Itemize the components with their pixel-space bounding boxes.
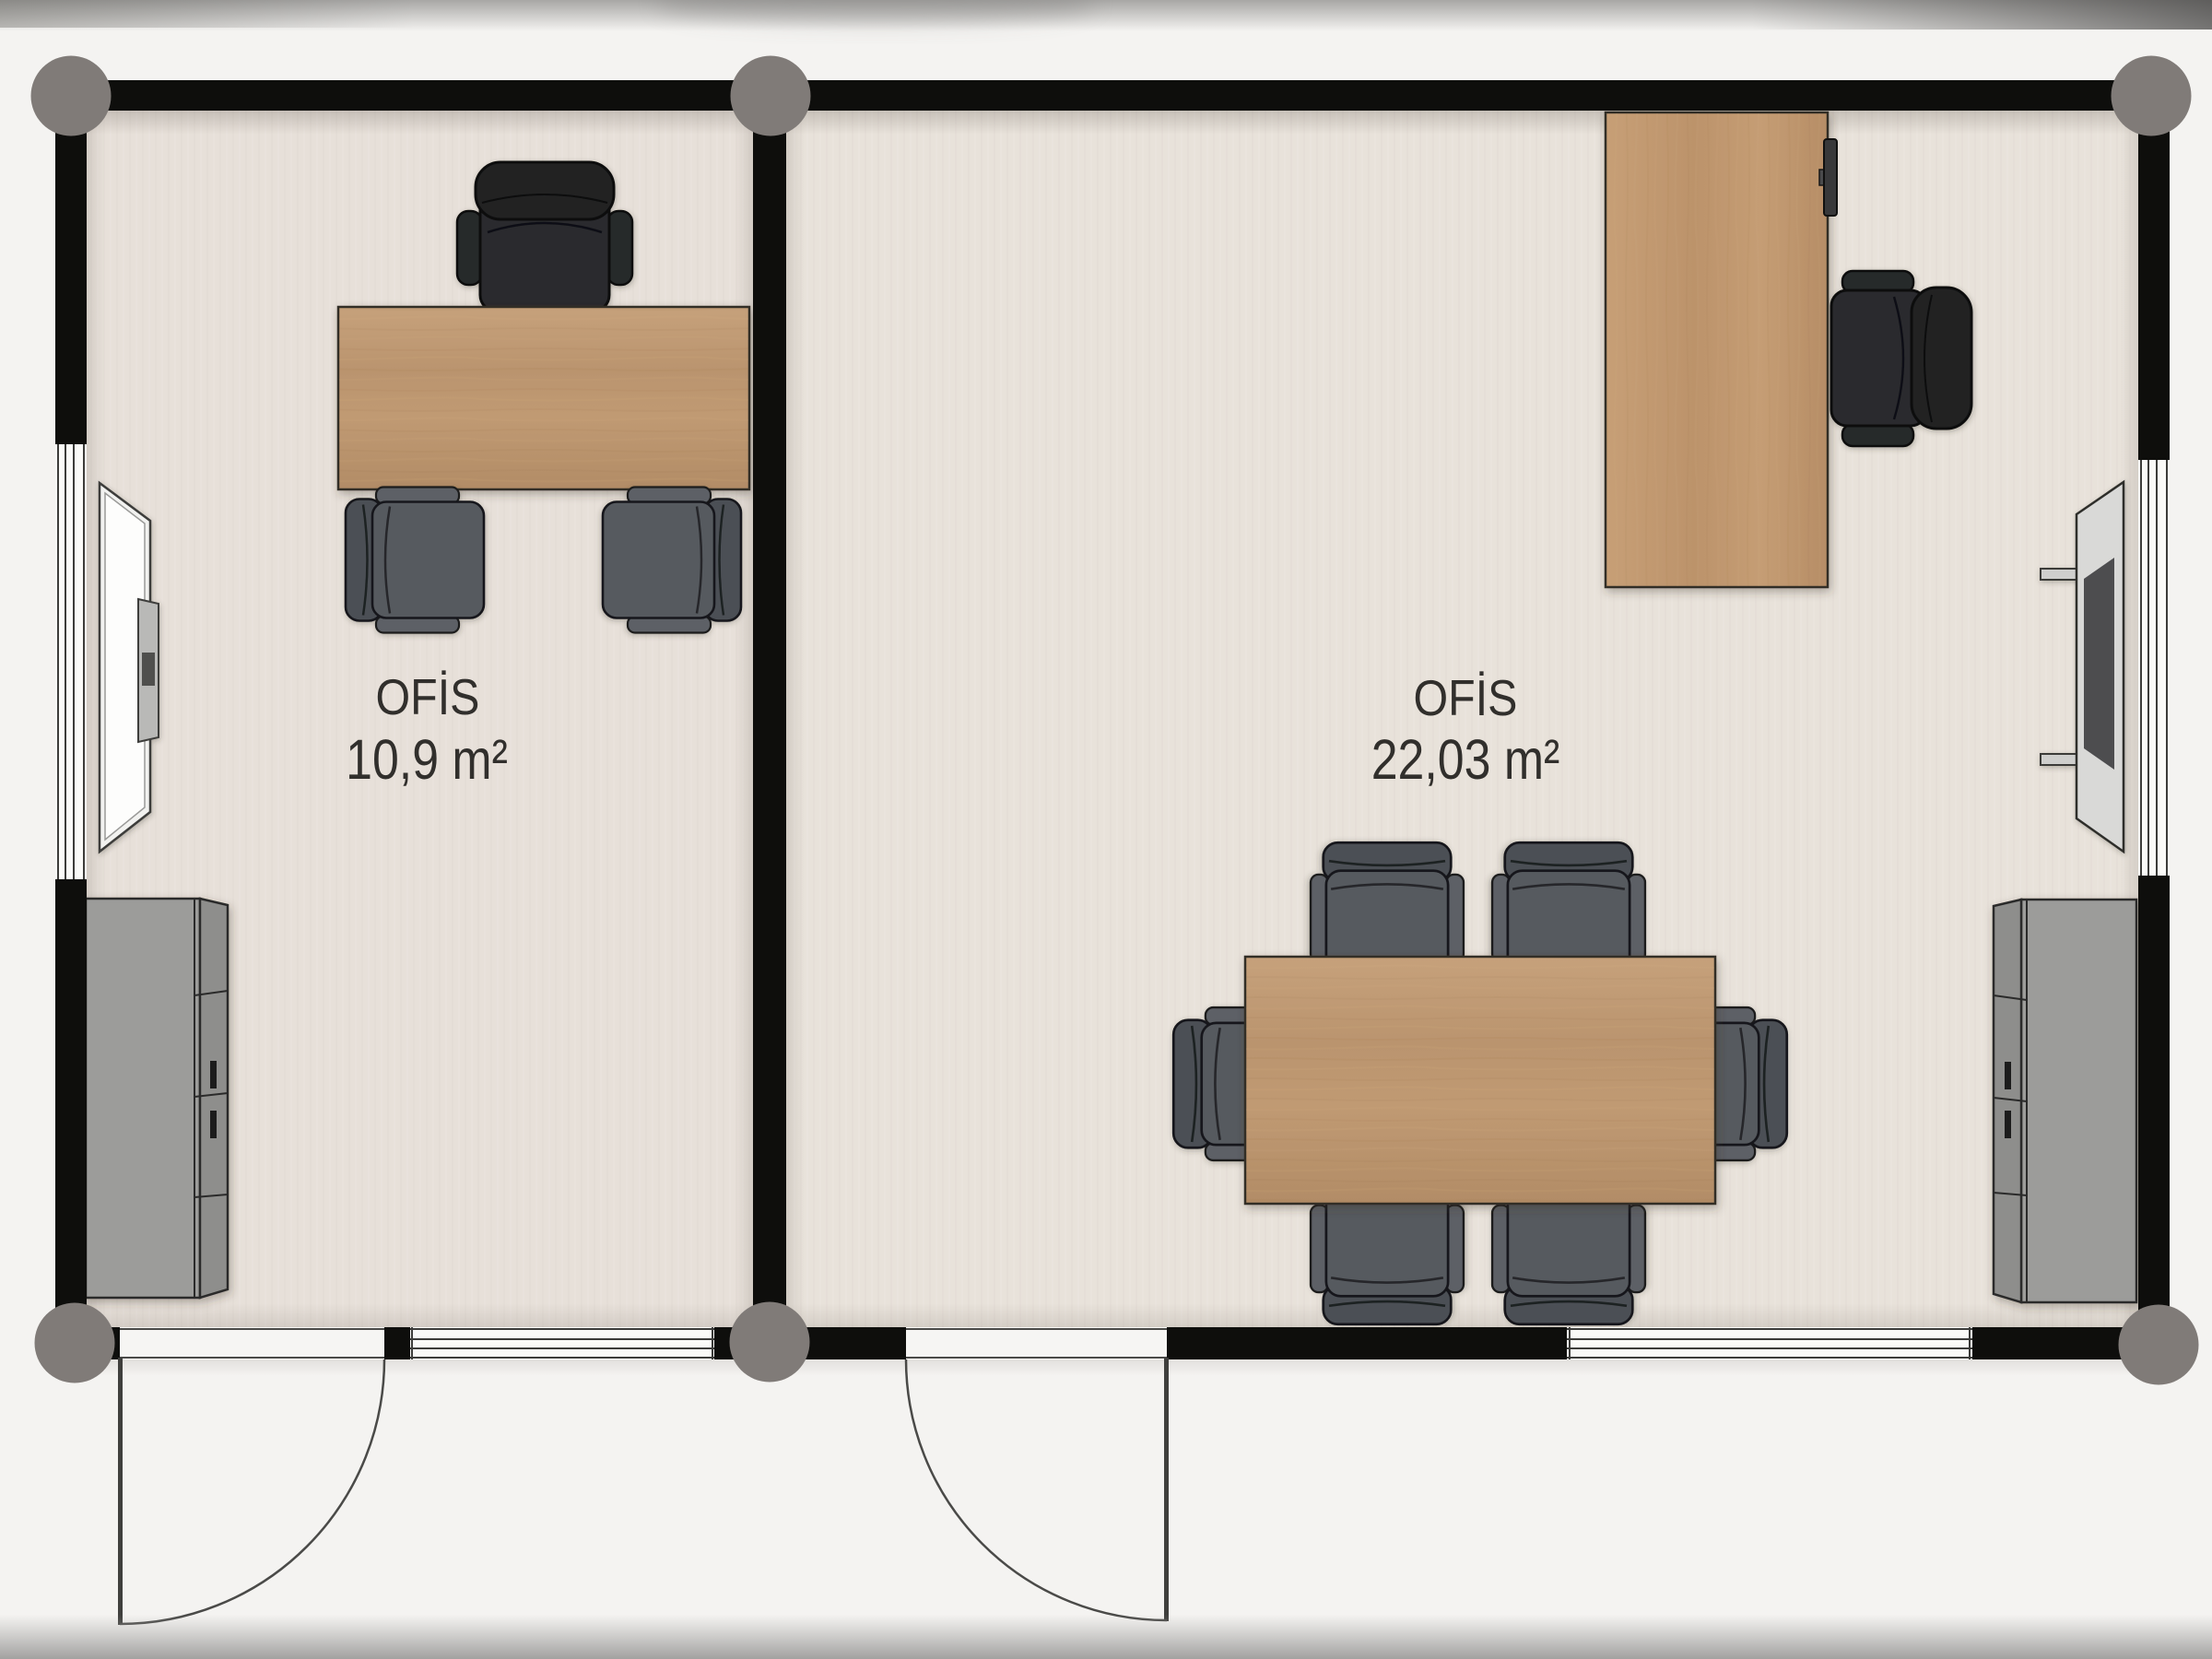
- svg-text:OFİS: OFİS: [1414, 669, 1518, 726]
- svg-text:OFİS: OFİS: [376, 668, 480, 725]
- svg-text:22,03 m²: 22,03 m²: [1371, 728, 1560, 791]
- svg-text:10,9 m²: 10,9 m²: [346, 728, 508, 791]
